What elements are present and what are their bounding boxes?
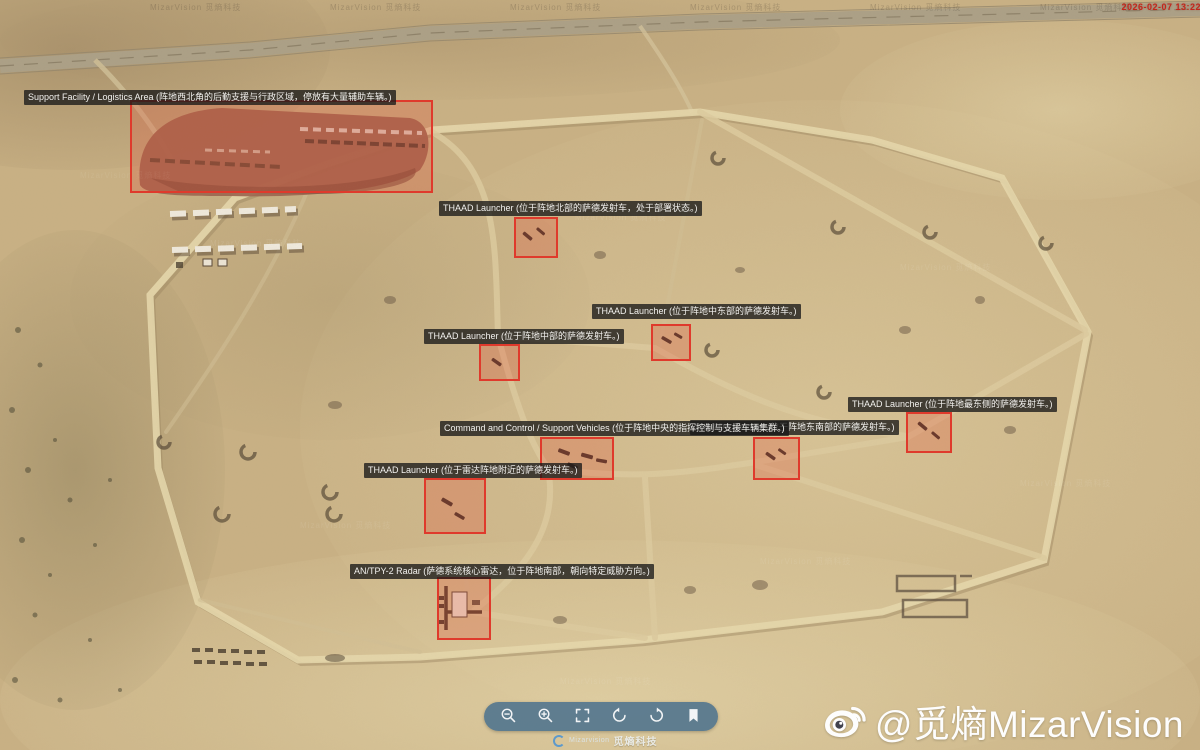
rotate-cw-icon bbox=[648, 707, 665, 727]
zoom-out-button[interactable] bbox=[495, 704, 521, 730]
rotate-ccw-icon bbox=[611, 707, 628, 727]
zoom-out-icon bbox=[500, 707, 517, 727]
annotation-label: THAAD Launcher (位于阵地中部的萨德发射车。) bbox=[424, 329, 624, 344]
annotation-box bbox=[651, 324, 691, 361]
fullscreen-button[interactable] bbox=[569, 704, 595, 730]
annotation-label: AN/TPY-2 Radar (萨德系统核心雷达，位于阵地南部，朝向特定威胁方向… bbox=[350, 564, 654, 579]
brand-watermark: Mizarvision 觅熵科技 bbox=[553, 733, 658, 748]
rotate-ccw-button[interactable] bbox=[607, 704, 633, 730]
annotation-label: Support Facility / Logistics Area (阵地西北角… bbox=[24, 90, 396, 105]
fullscreen-icon bbox=[574, 707, 591, 727]
annotation-label: THAAD Launcher (位于阵地最东侧的萨德发射车。) bbox=[848, 397, 1057, 412]
brand-name-en: Mizarvision bbox=[569, 737, 610, 744]
annotation-label: THAAD Launcher (位于阵地北部的萨德发射车，处于部署状态。) bbox=[439, 201, 702, 216]
annotation-box bbox=[130, 100, 433, 193]
weibo-handle: @觅熵MizarVision bbox=[875, 694, 1184, 748]
capture-timestamp: 2026-02-07 13:22:5 bbox=[1121, 2, 1200, 12]
annotation-label: THAAD Launcher (位于雷达阵地附近的萨德发射车。) bbox=[364, 463, 582, 478]
zoom-in-button[interactable] bbox=[532, 704, 558, 730]
satellite-annotation-view: MizarVision 觅熵科技MizarVision 觅熵科技MizarVis… bbox=[0, 0, 1200, 750]
annotation-label: THAAD Launcher (位于阵地中东部的萨德发射车。) bbox=[592, 304, 801, 319]
bookmark-icon bbox=[685, 707, 702, 727]
annotation-box bbox=[753, 437, 800, 480]
brand-name-cn: 觅熵科技 bbox=[614, 733, 658, 748]
zoom-in-icon bbox=[537, 707, 554, 727]
annotation-box bbox=[514, 217, 558, 258]
annotation-box bbox=[424, 478, 486, 534]
annotation-layer: Support Facility / Logistics Area (阵地西北角… bbox=[0, 0, 1200, 750]
viewer-toolbar bbox=[484, 702, 718, 731]
annotation-label: Command and Control / Support Vehicles (… bbox=[440, 421, 789, 436]
weibo-watermark: @觅熵MizarVision bbox=[823, 694, 1184, 748]
mizarvision-logo-icon bbox=[553, 735, 565, 747]
annotation-box bbox=[906, 412, 952, 453]
rotate-cw-button[interactable] bbox=[644, 704, 670, 730]
bookmark-button[interactable] bbox=[681, 704, 707, 730]
weibo-icon bbox=[823, 699, 869, 744]
annotation-box bbox=[437, 577, 491, 640]
annotation-box bbox=[479, 344, 520, 381]
